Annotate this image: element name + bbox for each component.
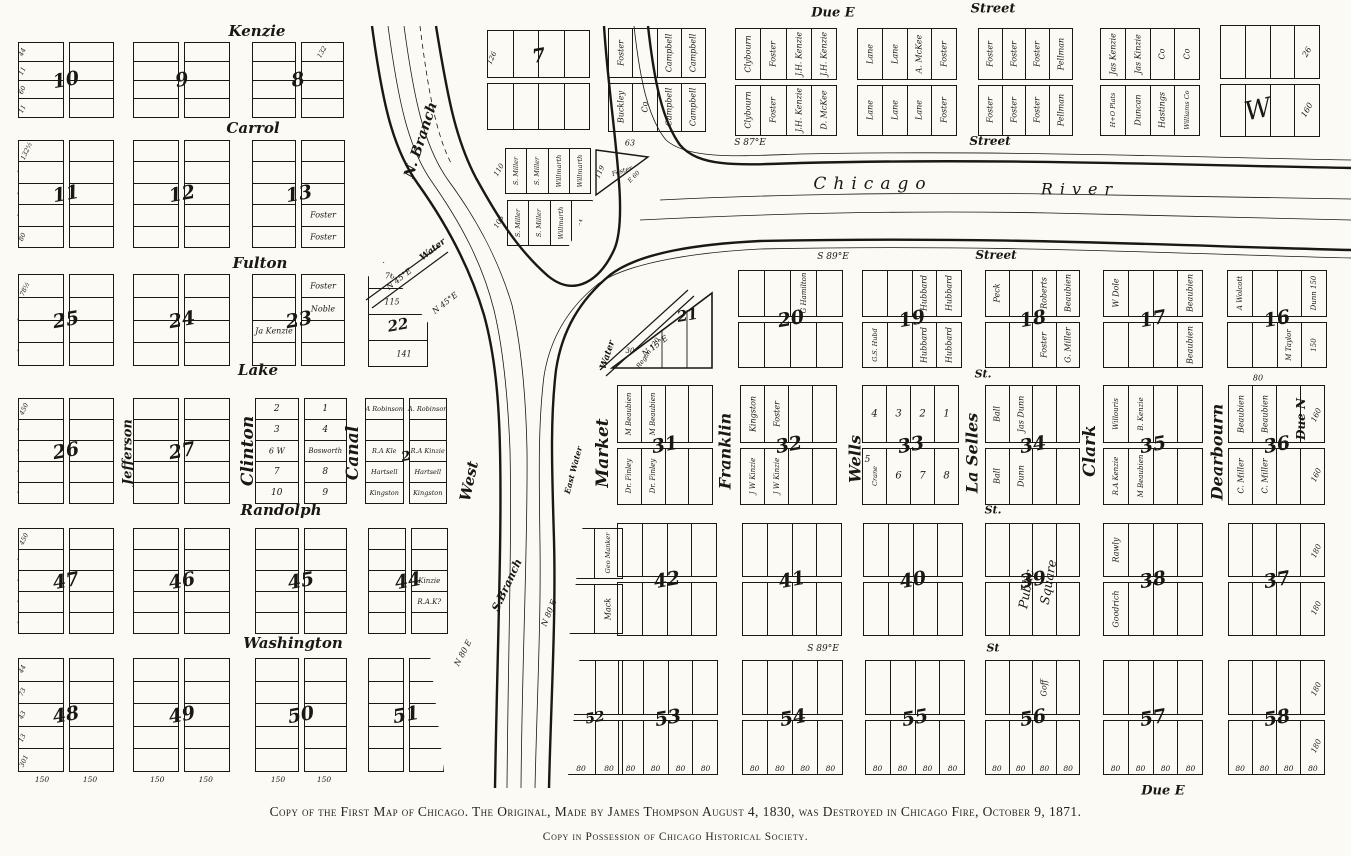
- lot: B. Kenzie: [1128, 386, 1153, 442]
- lot-dimension: 80: [1284, 764, 1294, 773]
- block-26: 26450″″″″: [18, 398, 114, 504]
- lot-owner-hubbard: Hubbard: [920, 327, 929, 363]
- lot-owner-c-miller: C. Miller: [1260, 459, 1269, 494]
- lot-dimension: 150: [35, 775, 49, 784]
- lot: [488, 84, 513, 130]
- river-hatch-5: [640, 212, 1351, 220]
- lot-owner-1: 1: [943, 408, 949, 419]
- lot-owner-beaubien: Beaubien: [1236, 395, 1245, 433]
- lot: [1153, 583, 1178, 635]
- lot: [1221, 26, 1245, 78]
- lot-owner-foster: Foster: [310, 232, 336, 241]
- lot: [792, 583, 817, 635]
- lot-owner-foster: Foster: [1033, 97, 1042, 123]
- lot: Foster: [979, 29, 1002, 79]
- lot: Beaubien: [1229, 386, 1252, 442]
- lot: Kingston: [410, 482, 447, 503]
- block-lots: S. MillerS. MillerWillmarthWillmarth: [505, 148, 591, 194]
- lot: 9: [305, 482, 347, 503]
- lot: Foster: [931, 86, 956, 136]
- lot-dimension: 80: [750, 764, 760, 773]
- lot: Willmarth: [550, 201, 571, 245]
- block-21-triangle: [612, 293, 712, 368]
- block-half: [567, 660, 623, 715]
- map-label-regan-120: Regan 120: [635, 336, 662, 370]
- lot: [767, 524, 792, 576]
- map-label-east-water: East Water: [562, 445, 584, 495]
- lot: [1221, 85, 1245, 137]
- lot: 2: [256, 399, 298, 419]
- block-number-52: 52: [584, 708, 606, 727]
- lot-owner-115: 115: [384, 297, 399, 306]
- map-label-street: Street: [971, 2, 1016, 17]
- lot: S. Miller: [508, 201, 528, 245]
- lot: [643, 661, 668, 714]
- lot: Foster: [302, 204, 344, 225]
- lot-owner-hubbard: Hubbard: [945, 275, 954, 311]
- lot: M Beaubien: [618, 386, 641, 442]
- lot: [619, 661, 643, 714]
- lot: [70, 591, 114, 612]
- block-56: Goff5680808080: [985, 660, 1080, 775]
- lot: [134, 549, 178, 570]
- lot-owner-s-miller: S. Miller: [533, 157, 541, 185]
- lot: [939, 661, 964, 714]
- lot: [369, 549, 405, 570]
- lot: [253, 61, 295, 80]
- lot-owner-clybourn: Clybourn: [744, 92, 753, 129]
- block-9: 9: [133, 42, 230, 118]
- lot: [618, 524, 642, 576]
- block-53: 5380808080: [618, 660, 718, 775]
- lot: [369, 612, 405, 633]
- lot: [743, 583, 767, 635]
- block-number-38: 38: [1138, 566, 1168, 592]
- lot-owner-a-wolcott: A Wolcott: [1236, 276, 1244, 310]
- lot-owner-3: 3: [274, 425, 280, 435]
- lot-owner-co: Co: [1183, 48, 1192, 59]
- lot-owner-foster: Foster: [986, 97, 995, 123]
- lot: 7: [910, 449, 934, 505]
- lot: [1032, 449, 1056, 505]
- lot: R.A Kenzie: [1104, 449, 1128, 505]
- lot: [305, 612, 347, 633]
- lot-owner-s-miller: S. Miller: [514, 209, 522, 237]
- lot: [412, 612, 448, 633]
- lot-owner-m-beaubien: M Beaubien: [1137, 455, 1145, 498]
- river-hatch-4: [660, 193, 1351, 200]
- block-13: FosterFoster13: [252, 140, 345, 248]
- map-label-n-45-e: N 45°E: [431, 290, 460, 315]
- lot-owner-j-h-kenzie: J.H. Kenzie: [794, 88, 803, 132]
- lot: Foster: [760, 29, 785, 79]
- lot: [566, 529, 594, 578]
- lot: [1276, 583, 1300, 635]
- lot: Co: [632, 84, 656, 132]
- lot: Lane: [882, 29, 907, 79]
- block-47: 47450″″″″: [18, 528, 114, 634]
- lot: [632, 29, 656, 77]
- lot-dimension: 80: [1136, 764, 1146, 773]
- lot-owner-4: 4: [871, 408, 877, 419]
- lot: [256, 726, 298, 749]
- lot: [1056, 583, 1080, 635]
- lot: [253, 161, 295, 182]
- lot-owner-foster: Foster: [1040, 332, 1049, 358]
- block-number-45: 45: [286, 568, 316, 594]
- lot: [986, 524, 1009, 576]
- block-number-18: 18: [1018, 306, 1048, 332]
- map-label-west: West: [456, 459, 482, 502]
- block-51: 5115538: [368, 658, 444, 772]
- map-label-clark: Clark: [1080, 425, 1100, 477]
- block-half: A RobinsonR.A KleHartsellKingston: [365, 398, 404, 504]
- lot: [19, 342, 63, 365]
- lot: Willmarth: [569, 149, 590, 193]
- lot: J.H. Kenzie: [811, 29, 836, 79]
- lot-owner-141: 141: [396, 349, 411, 358]
- lot: [185, 612, 229, 633]
- lot: [513, 84, 539, 130]
- block-number-16: 16: [1262, 306, 1292, 332]
- lot-owner-7: 7: [274, 467, 280, 477]
- lot: [1177, 524, 1202, 576]
- lot-owner-d-mckee: D. McKee: [819, 91, 828, 130]
- lot: [1270, 26, 1295, 78]
- block-half: LaneLaneA. McKeeFoster: [857, 28, 957, 80]
- lot: [812, 386, 836, 442]
- lot: A. McKee: [907, 29, 932, 79]
- lot-owner-beaubien: Beaubien: [1186, 326, 1195, 364]
- lot-owner-hastings: Hastings: [1158, 92, 1167, 128]
- lot: [864, 583, 888, 635]
- lot: 8: [305, 461, 347, 482]
- lot: [369, 748, 403, 771]
- block-half: FosterCampbellCampbell: [608, 28, 706, 78]
- lot-owner-dunn: Dunn: [1016, 465, 1025, 487]
- lot: [134, 748, 178, 771]
- lot-owner-160: 160: [1299, 101, 1314, 119]
- lot: [410, 748, 444, 771]
- lot: [185, 80, 229, 99]
- lot-owner-co: Co: [640, 102, 649, 113]
- block-17: W DoleBeaubienBeaubien17: [1103, 270, 1203, 368]
- lot: H+O Plats: [1101, 86, 1125, 136]
- lot: [642, 524, 667, 576]
- lot-owner-lane: Lane: [915, 100, 924, 120]
- lot: [1252, 524, 1276, 576]
- lot: Willouris: [1104, 386, 1128, 442]
- map-canvas: 21 Copy of the First Map of Chicago. The…: [0, 0, 1351, 856]
- lot: 132: [302, 43, 344, 61]
- lot: Pellman: [1049, 29, 1073, 79]
- lot: Jas Dunn: [1009, 386, 1033, 442]
- lot: [1104, 323, 1128, 368]
- lot: C. Miller: [1229, 449, 1252, 505]
- lot: [688, 449, 712, 505]
- lot: [305, 726, 347, 749]
- block-number-37: 37: [1262, 566, 1292, 592]
- lot: [568, 661, 595, 714]
- lot: Hubbard: [936, 323, 961, 368]
- lot: Clybourn: [736, 86, 760, 136]
- lot: 10: [256, 482, 298, 503]
- lot: [739, 323, 764, 368]
- map-label-la-selles: La Selles: [963, 413, 982, 493]
- lot-owner-foster: Foster: [1009, 97, 1018, 123]
- lot: [1056, 524, 1080, 576]
- lot-owner-m-beaubien: M Beaubien: [649, 392, 657, 435]
- lot: 150: [1301, 323, 1326, 368]
- lot: [134, 161, 178, 182]
- lot: [70, 342, 114, 365]
- lot-owner-w-dole: W Dole: [1111, 279, 1120, 308]
- lot: S. Miller: [506, 149, 526, 193]
- block-number-40: 40: [898, 566, 928, 592]
- lot: A. Robinson: [410, 399, 447, 419]
- lot: [1228, 323, 1252, 368]
- lot: [185, 275, 229, 297]
- lot-dimension: 80: [992, 764, 1002, 773]
- lot-owner-9: 9: [322, 488, 328, 498]
- lot: [1177, 583, 1202, 635]
- lot-owner-hubbard: Hubbard: [945, 327, 954, 363]
- lot: [986, 323, 1009, 368]
- lot: [134, 529, 178, 549]
- lot-owner-campbell: Campbell: [689, 33, 698, 72]
- lot-owner-willmarth: Willmarth: [555, 155, 563, 188]
- lot: Campbell: [657, 29, 681, 77]
- lot: [185, 461, 229, 482]
- lot-owner-clybourn: Clybourn: [744, 35, 753, 72]
- lot-owner-2: 2: [274, 404, 280, 414]
- lot: [134, 98, 178, 117]
- lot: Clybourn: [736, 29, 760, 79]
- lot-dimension: 80: [948, 764, 958, 773]
- lot-owner-g-s-hubd: G.S. Hubd: [871, 328, 879, 362]
- lot: [19, 591, 63, 612]
- block-number-27: 27: [167, 438, 197, 464]
- lot: [256, 748, 298, 771]
- lot: [256, 529, 298, 549]
- lot: Beaubien: [1252, 386, 1276, 442]
- block-lots: S. MillerS. MillerWillmarth64: [507, 200, 593, 246]
- map-label-due-e: Due E: [1141, 784, 1184, 799]
- block-number-35: 35: [1138, 432, 1168, 458]
- lot-owner-rawly: Rawly: [1111, 538, 1120, 563]
- lot-dimension: 80: [626, 764, 636, 773]
- lot: [134, 482, 178, 503]
- lot-owner-a-mckee: A. McKee: [915, 34, 924, 73]
- block-10: 1044116011: [18, 42, 114, 118]
- lot: 3: [256, 419, 298, 440]
- lot: [1128, 661, 1153, 714]
- lot-dimension: 155: [380, 775, 394, 784]
- lot: [19, 612, 63, 633]
- lot: Foster: [1025, 86, 1049, 136]
- lot: S. Miller: [528, 201, 549, 245]
- lot: [185, 141, 229, 161]
- block-number-56: 56: [1018, 704, 1048, 730]
- lot: [366, 419, 403, 440]
- lot-dimension: 80: [1063, 764, 1073, 773]
- lot-owner-c-miller: C. Miller: [1236, 459, 1245, 494]
- lot: Beaubien: [1177, 323, 1202, 368]
- lot: [1153, 449, 1178, 505]
- lot-owner-kingston: Kingston: [748, 396, 757, 432]
- lot: Co: [1150, 29, 1175, 79]
- block-half: 14Bosworth89: [304, 398, 348, 504]
- lot: [185, 591, 229, 612]
- block-lots: Geo MankerMack: [565, 528, 623, 634]
- lot: R.A Kinzie: [410, 440, 447, 461]
- block-number-46: 46: [167, 568, 197, 594]
- lot: [816, 583, 841, 635]
- block-57: 5780808080: [1103, 660, 1203, 775]
- block-half: 26: [1220, 25, 1320, 79]
- lot: [692, 661, 717, 714]
- lot: R.A.K?: [412, 591, 448, 612]
- lot-dimension: 80: [873, 764, 883, 773]
- lot: [410, 419, 447, 440]
- block-number-22: 22: [386, 314, 410, 335]
- lot: [369, 591, 405, 612]
- lot: [1056, 386, 1080, 442]
- lot-owner-foster: Foster: [769, 41, 778, 67]
- map-label-street: Street: [969, 134, 1010, 148]
- lot-owner-dunn-150: Dunn 150: [1310, 276, 1318, 311]
- block-18: PeckRobertsBeaubienFosterG. Miller18: [985, 270, 1080, 368]
- lot: Kingston: [741, 386, 764, 442]
- map-label-due-n: Due N: [1294, 398, 1308, 440]
- lot-owner-r-a-k: R.A.K?: [417, 598, 441, 606]
- block-35: WillourisB. KenzieR.A KenzieM Beaubien35: [1103, 385, 1203, 505]
- block-37: 37180180: [1228, 523, 1325, 636]
- lot: 6 W: [256, 440, 298, 461]
- map-label-st: St.: [975, 368, 992, 381]
- map-label-river: River: [1041, 180, 1119, 199]
- lot-owner-ball: Ball: [993, 468, 1002, 484]
- block-54: 5480808080: [742, 660, 843, 775]
- lot-owner-r-a-kinzie: R.A Kinzie: [411, 447, 445, 455]
- lot-owner-williams-co: Williams Co: [1183, 91, 1191, 130]
- map-label-washington: Washington: [243, 634, 343, 652]
- block-number-55: 55: [900, 704, 930, 730]
- lot: Willmarth: [548, 149, 569, 193]
- lot-dimension: 150: [199, 775, 213, 784]
- lot: [564, 84, 590, 130]
- lot: [70, 748, 114, 771]
- lot-owner-a-robinson: A Robinson: [366, 405, 403, 413]
- lot-dimension: 80: [651, 764, 661, 773]
- block-half: A. RobinsonR.A KinzieHartsellKingston: [409, 398, 448, 504]
- lot: [134, 399, 178, 419]
- block-number-31: 31: [650, 432, 680, 458]
- block-half: Jas KenzieJas KinzieCoCo: [1100, 28, 1200, 80]
- lot-owner-b-kenzie: B. Kenzie: [1137, 397, 1145, 430]
- map-label-canal: Canal: [343, 426, 363, 480]
- lot: G. Miller: [1056, 323, 1080, 368]
- lot-dimension: 80: [676, 764, 686, 773]
- lot: 4: [863, 386, 886, 442]
- lot-owner-willmarth: Willmarth: [557, 207, 565, 240]
- lot-owner-roberts: Roberts: [1040, 277, 1049, 309]
- lot-dimension: 80: [701, 764, 711, 773]
- lot: [1229, 661, 1252, 714]
- lot: [185, 43, 229, 61]
- block-33: 4321Crane567833: [862, 385, 959, 505]
- lot-owner-foster: Foster: [769, 97, 778, 123]
- lot-dimension: 150: [271, 775, 285, 784]
- lot: 8: [934, 449, 958, 505]
- block-38: RawlyGoodrich38: [1103, 523, 1203, 636]
- lot: [134, 659, 178, 681]
- lot: [19, 204, 63, 225]
- lot-owner-goff: Goff: [1040, 679, 1049, 696]
- lot: Foster: [1002, 29, 1026, 79]
- lot: [185, 98, 229, 117]
- lot: Foster: [931, 29, 956, 79]
- lot-owner-hartsell: Hartsell: [371, 468, 398, 476]
- lot: Foster: [302, 275, 344, 297]
- lot: [185, 204, 229, 225]
- lot: [185, 529, 229, 549]
- lot: A Wolcott: [1228, 271, 1252, 316]
- block-12: 12: [133, 140, 230, 248]
- lot: Foster: [1025, 29, 1049, 79]
- lot: [19, 482, 63, 503]
- map-label-carrol: Carrol: [226, 119, 279, 137]
- block-number-54: 54: [778, 704, 808, 730]
- lot: [256, 681, 298, 704]
- lot: [986, 583, 1009, 635]
- lot: [302, 61, 344, 80]
- lot: [185, 659, 229, 681]
- lot: [134, 612, 178, 633]
- map-label-market: Market: [593, 418, 613, 487]
- lot: [70, 161, 114, 182]
- map-label-st: St: [986, 642, 999, 655]
- lot: [70, 549, 114, 570]
- map-label-105: 105: [492, 214, 506, 230]
- lot: [70, 726, 114, 749]
- map-label-wells: Wells: [846, 435, 865, 483]
- lot: [253, 141, 295, 161]
- lot: [564, 31, 590, 77]
- lot-owner-a-robinson: A. Robinson: [408, 405, 448, 413]
- lot: Campbell: [681, 29, 705, 77]
- lot-owner-lane: Lane: [865, 44, 874, 64]
- lot: [816, 323, 842, 368]
- map-label-clinton: Clinton: [238, 416, 258, 486]
- lot-owner-8: 8: [943, 471, 949, 482]
- lot: [816, 524, 841, 576]
- lot-owner-10: 10: [271, 488, 282, 498]
- block-number-13: 13: [284, 181, 314, 207]
- lot-owner-j-w-kinzie: J W Kinzie: [749, 458, 757, 495]
- lot: [1229, 583, 1252, 635]
- lot: 3: [886, 386, 910, 442]
- block-58: 5880808080180180: [1228, 660, 1325, 775]
- lot: [369, 659, 403, 681]
- block-2: A RobinsonR.A KleHartsellKingstonA. Robi…: [365, 398, 447, 504]
- lot: Hastings: [1150, 86, 1175, 136]
- lot-owner-campbell: Campbell: [665, 33, 674, 72]
- lot-owner-foster: Foster: [940, 41, 949, 67]
- lot: [1177, 449, 1202, 505]
- lot: [134, 226, 178, 247]
- caption-title: Copy of the First Map of Chicago. The Or…: [0, 804, 1351, 820]
